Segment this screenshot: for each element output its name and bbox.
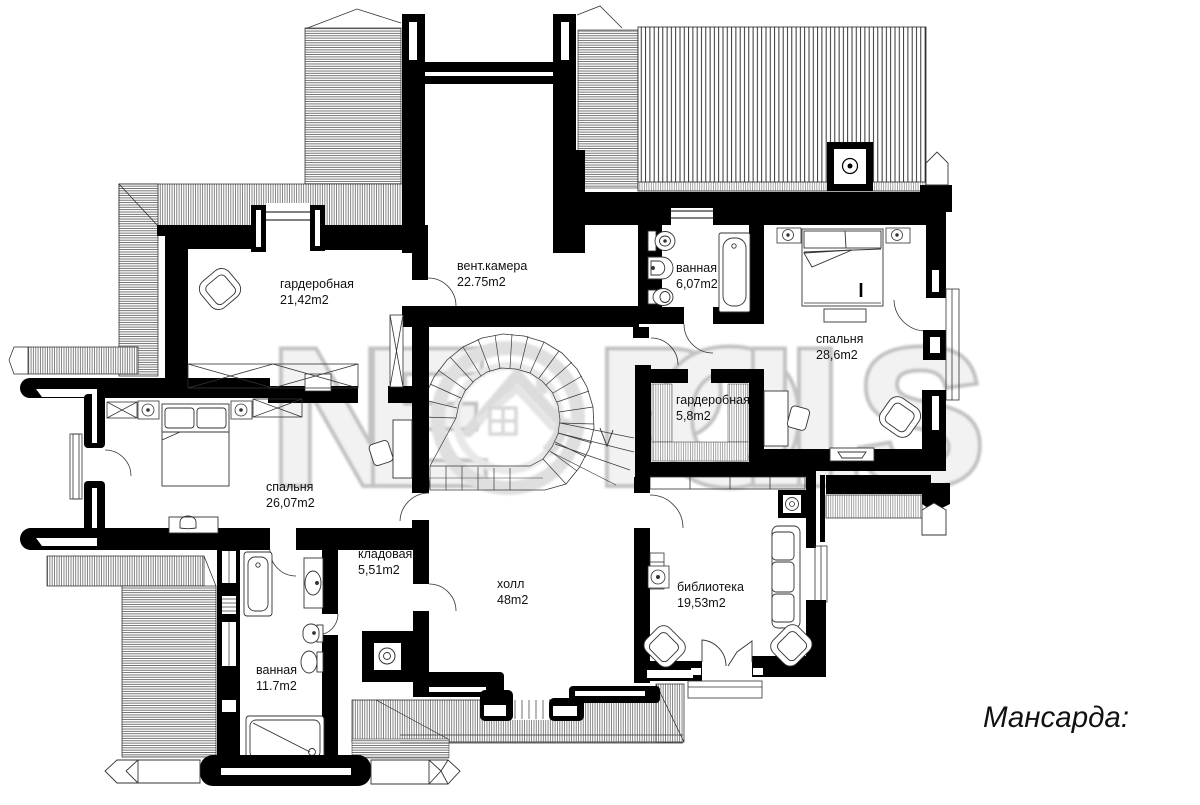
- svg-text:5,51m2: 5,51m2: [358, 563, 400, 577]
- svg-text:спальня: спальня: [816, 332, 863, 346]
- svg-text:гардеробная: гардеробная: [676, 393, 750, 407]
- svg-text:22.75m2: 22.75m2: [457, 275, 506, 289]
- svg-text:ванная: ванная: [676, 261, 717, 275]
- svg-text:11.7m2: 11.7m2: [256, 679, 297, 693]
- svg-text:28,6m2: 28,6m2: [816, 348, 858, 362]
- svg-text:ванная: ванная: [256, 663, 297, 677]
- svg-text:48m2: 48m2: [497, 593, 528, 607]
- svg-text:кладовая: кладовая: [358, 547, 412, 561]
- svg-text:5,8m2: 5,8m2: [676, 409, 711, 423]
- svg-text:Мансарда:: Мансарда:: [983, 701, 1129, 734]
- svg-text:26,07m2: 26,07m2: [266, 496, 315, 510]
- svg-text:библиотека: библиотека: [677, 580, 744, 594]
- svg-text:19,53m2: 19,53m2: [677, 596, 726, 610]
- svg-text:21,42m2: 21,42m2: [280, 293, 329, 307]
- svg-text:6,07m2: 6,07m2: [676, 277, 718, 291]
- svg-text:холл: холл: [497, 577, 524, 591]
- svg-text:спальня: спальня: [266, 480, 313, 494]
- svg-text:гардеробная: гардеробная: [280, 277, 354, 291]
- svg-text:вент.камера: вент.камера: [457, 259, 527, 273]
